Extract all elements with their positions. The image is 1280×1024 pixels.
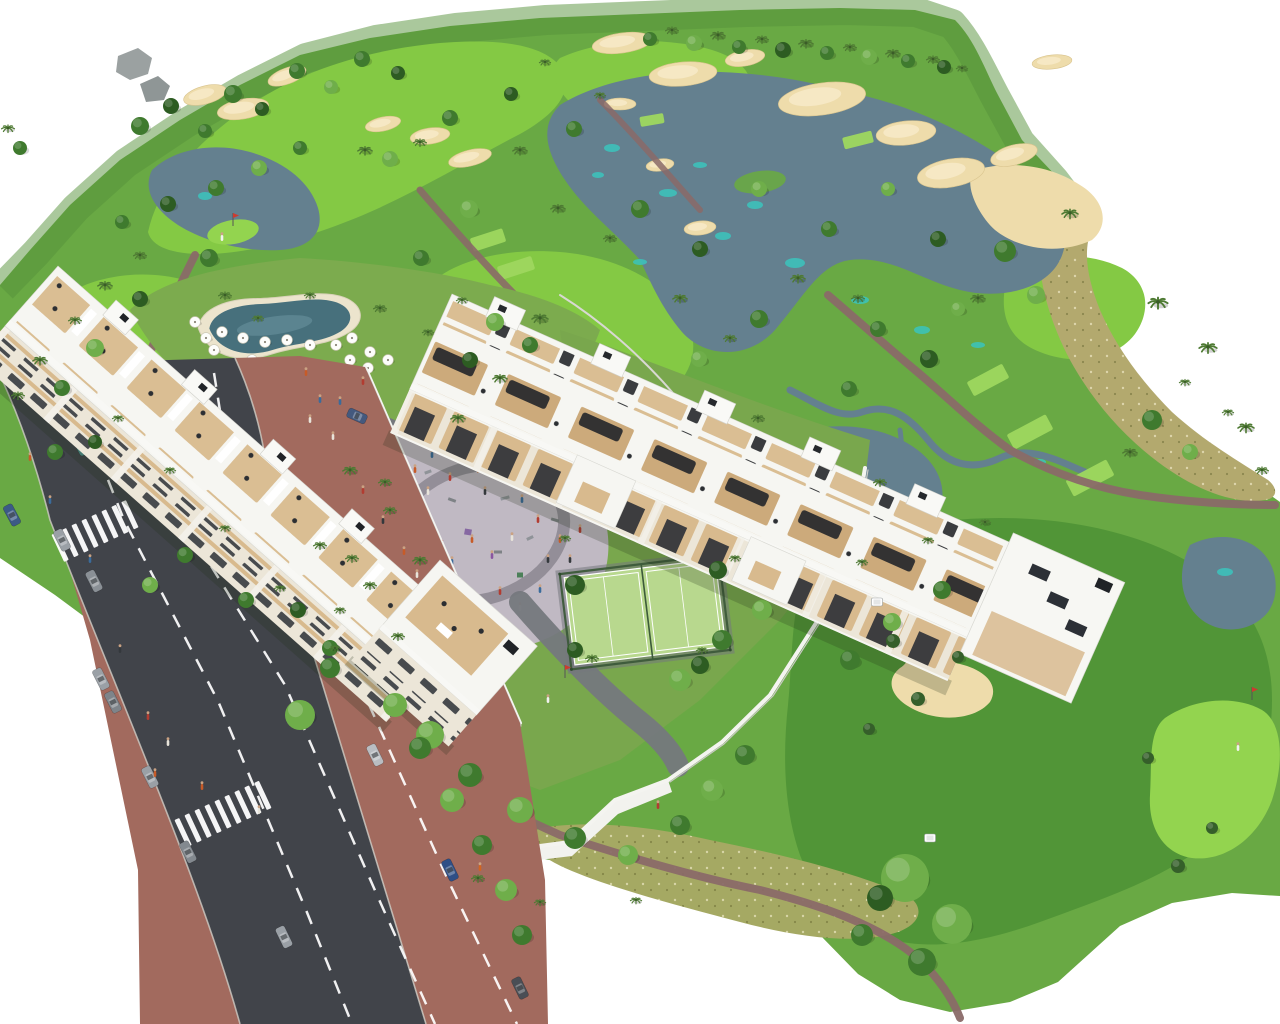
pedestrian bbox=[569, 554, 572, 563]
sand-bunker-highlight bbox=[608, 100, 627, 107]
pedestrian bbox=[339, 396, 342, 405]
pedestrian bbox=[427, 486, 430, 495]
pedestrian bbox=[537, 514, 540, 523]
pedestrian bbox=[49, 495, 52, 504]
tree bbox=[163, 98, 181, 114]
golf-cart bbox=[925, 834, 936, 842]
pedestrian bbox=[89, 554, 92, 563]
teal-water-patch bbox=[633, 259, 647, 265]
render-canvas bbox=[0, 0, 1280, 1024]
palm-tree-icon bbox=[1222, 409, 1234, 416]
pedestrian bbox=[362, 485, 365, 494]
palm-tree-icon bbox=[1179, 379, 1191, 386]
pedestrian bbox=[657, 800, 660, 809]
pedestrian bbox=[29, 452, 32, 461]
play-equipment bbox=[464, 528, 472, 535]
tree bbox=[13, 141, 29, 155]
pedestrian bbox=[539, 584, 542, 593]
pedestrian bbox=[382, 515, 385, 524]
rock-outcrop bbox=[116, 48, 170, 102]
palm-tree-icon bbox=[1199, 343, 1217, 353]
palm-tree-icon bbox=[1148, 298, 1168, 309]
pedestrian bbox=[258, 805, 261, 814]
pedestrian bbox=[201, 781, 204, 790]
pedestrian bbox=[403, 546, 406, 555]
pedestrian bbox=[309, 414, 312, 423]
golf-cart bbox=[872, 598, 883, 606]
teal-water-patch bbox=[693, 162, 707, 168]
pedestrian bbox=[305, 367, 308, 376]
teal-water-patch bbox=[914, 326, 930, 334]
teal-water-patch bbox=[198, 192, 212, 200]
golfer bbox=[547, 694, 550, 703]
pedestrian bbox=[332, 431, 335, 440]
pedestrian bbox=[499, 586, 502, 595]
pedestrian bbox=[547, 554, 550, 563]
pedestrian bbox=[319, 394, 322, 403]
pedestrian bbox=[154, 768, 157, 777]
golfer bbox=[221, 232, 224, 241]
teal-water-patch bbox=[715, 232, 731, 240]
teal-water-patch bbox=[747, 201, 763, 209]
pedestrian bbox=[491, 550, 494, 559]
pedestrian bbox=[416, 569, 419, 578]
pedestrian bbox=[414, 464, 417, 473]
teal-water-patch bbox=[785, 258, 805, 268]
palm-tree-icon bbox=[1256, 467, 1269, 474]
play-equipment bbox=[517, 573, 523, 578]
palm-tree-icon bbox=[630, 897, 642, 904]
teal-water-patch bbox=[604, 144, 620, 152]
teal-water-patch bbox=[971, 342, 985, 348]
palm-tree-icon bbox=[1238, 423, 1255, 432]
pedestrian bbox=[479, 862, 482, 871]
play-equipment bbox=[494, 551, 502, 554]
teal-water-patch bbox=[1217, 568, 1233, 576]
pedestrian bbox=[147, 711, 150, 720]
pedestrian bbox=[362, 376, 365, 385]
pedestrian bbox=[167, 737, 170, 746]
teal-water-patch bbox=[659, 189, 677, 197]
pedestrian bbox=[471, 534, 474, 543]
aerial-render-svg bbox=[0, 0, 1280, 1024]
teal-water-patch bbox=[592, 172, 604, 178]
palm-tree-icon bbox=[2, 125, 15, 132]
pedestrian bbox=[511, 532, 514, 541]
tree bbox=[131, 117, 151, 135]
pedestrian bbox=[119, 644, 122, 653]
golfer bbox=[1237, 742, 1240, 751]
